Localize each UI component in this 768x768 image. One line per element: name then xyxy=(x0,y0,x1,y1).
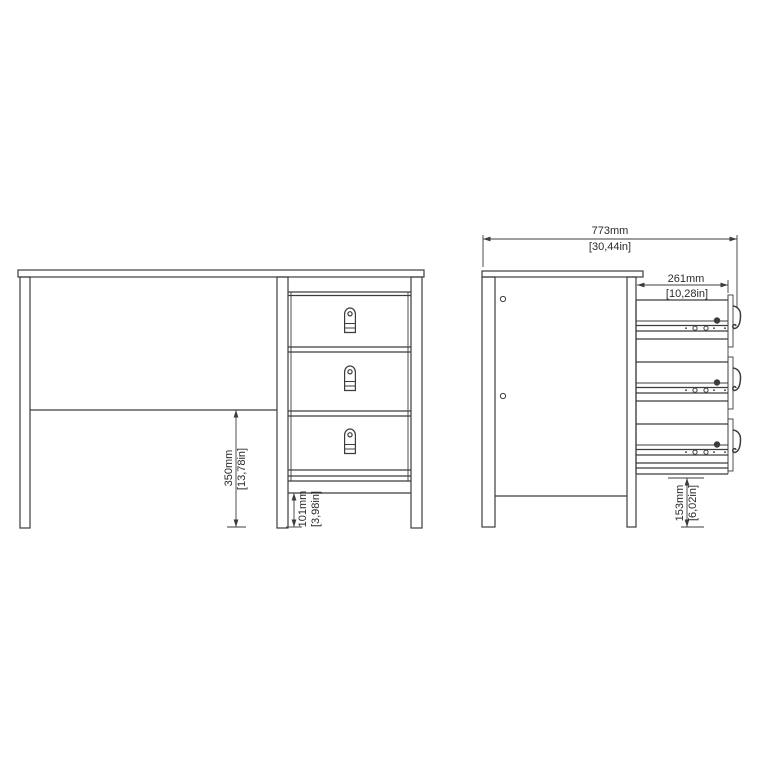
desk-top-front xyxy=(18,270,424,277)
base-rail-clearance-mm-label: 101mm xyxy=(297,491,309,528)
overall-depth-in-label: [30,44in] xyxy=(589,241,631,253)
front-view xyxy=(18,270,424,528)
overall-depth-mm-label: 773mm xyxy=(592,225,629,237)
drawer-handle-icon xyxy=(345,308,356,332)
under-desk-clearance-mm-label: 350mm xyxy=(223,450,235,487)
drawer-slide-module xyxy=(636,295,741,347)
technical-drawing-canvas: 773mm [30,44in] 261mm [10,28in] 350mm [1… xyxy=(0,0,768,768)
under-desk-clearance-in-label: [13,78in] xyxy=(236,448,248,490)
drawer-handle-icon xyxy=(345,429,356,453)
drawer-depth-in-label: [10,28in] xyxy=(666,288,708,300)
base-rail-clearance-in-label: [3,98in] xyxy=(310,491,322,527)
panel-hole-icon xyxy=(500,296,505,301)
front-leg-side xyxy=(482,277,495,527)
drawer-depth-mm-label: 261mm xyxy=(668,273,705,285)
drawer-slide-module xyxy=(636,419,741,471)
side-base-clearance-mm-label: 153mm xyxy=(674,485,686,522)
drawer-slides-side xyxy=(636,295,741,474)
side-base-clearance-in-label: [6,02in] xyxy=(687,485,699,521)
right-leg xyxy=(411,277,422,528)
left-leg xyxy=(20,277,30,528)
drawer-handle-icon xyxy=(345,366,356,390)
rear-leg-side xyxy=(627,277,636,527)
drawer-slide-module xyxy=(636,357,741,409)
drawer-unit-front xyxy=(288,292,411,493)
line-art xyxy=(0,0,768,768)
panel-hole-icon xyxy=(500,393,505,398)
desk-top-side xyxy=(482,271,643,277)
center-leg xyxy=(277,277,288,528)
